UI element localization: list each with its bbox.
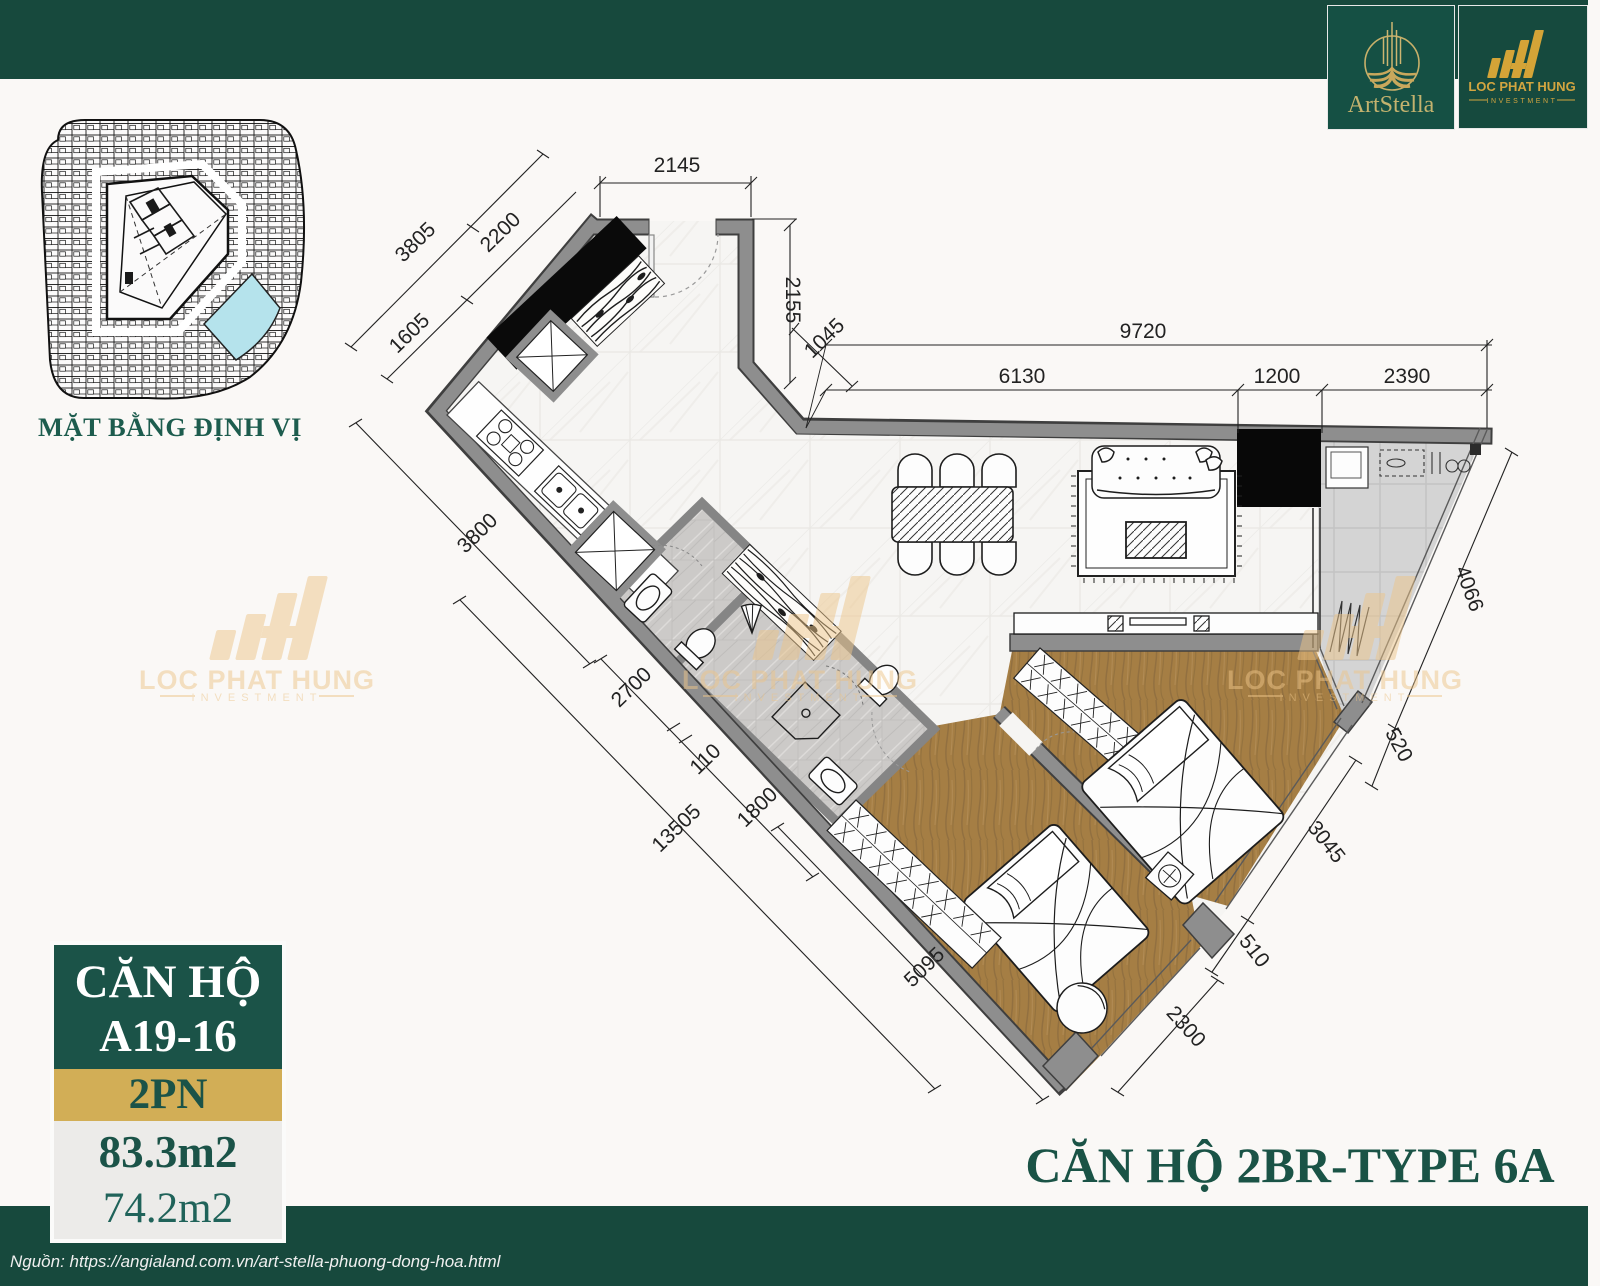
svg-text:1800: 1800: [733, 783, 783, 832]
svg-text:3045: 3045: [1303, 817, 1350, 868]
svg-text:520: 520: [1380, 724, 1417, 766]
svg-text:1200: 1200: [1254, 365, 1301, 388]
svg-text:2300: 2300: [1162, 1002, 1210, 1052]
svg-text:510: 510: [1234, 930, 1274, 972]
svg-text:6130: 6130: [999, 365, 1046, 388]
svg-text:2145: 2145: [654, 154, 701, 177]
svg-text:INVESTMENT: INVESTMENT: [192, 692, 323, 704]
svg-text:2390: 2390: [1384, 365, 1431, 388]
svg-text:13505: 13505: [647, 800, 705, 857]
svg-text:3800: 3800: [453, 509, 503, 558]
svg-text:110: 110: [685, 739, 725, 779]
svg-text:1605: 1605: [385, 309, 435, 358]
svg-text:1045: 1045: [800, 314, 850, 363]
svg-text:4066: 4066: [1450, 563, 1488, 615]
svg-text:2155: 2155: [781, 277, 804, 324]
svg-text:2700: 2700: [607, 663, 657, 712]
svg-text:3805: 3805: [391, 218, 441, 267]
svg-text:LOC PHAT HUNG: LOC PHAT HUNG: [139, 665, 375, 695]
svg-text:9720: 9720: [1120, 320, 1167, 343]
